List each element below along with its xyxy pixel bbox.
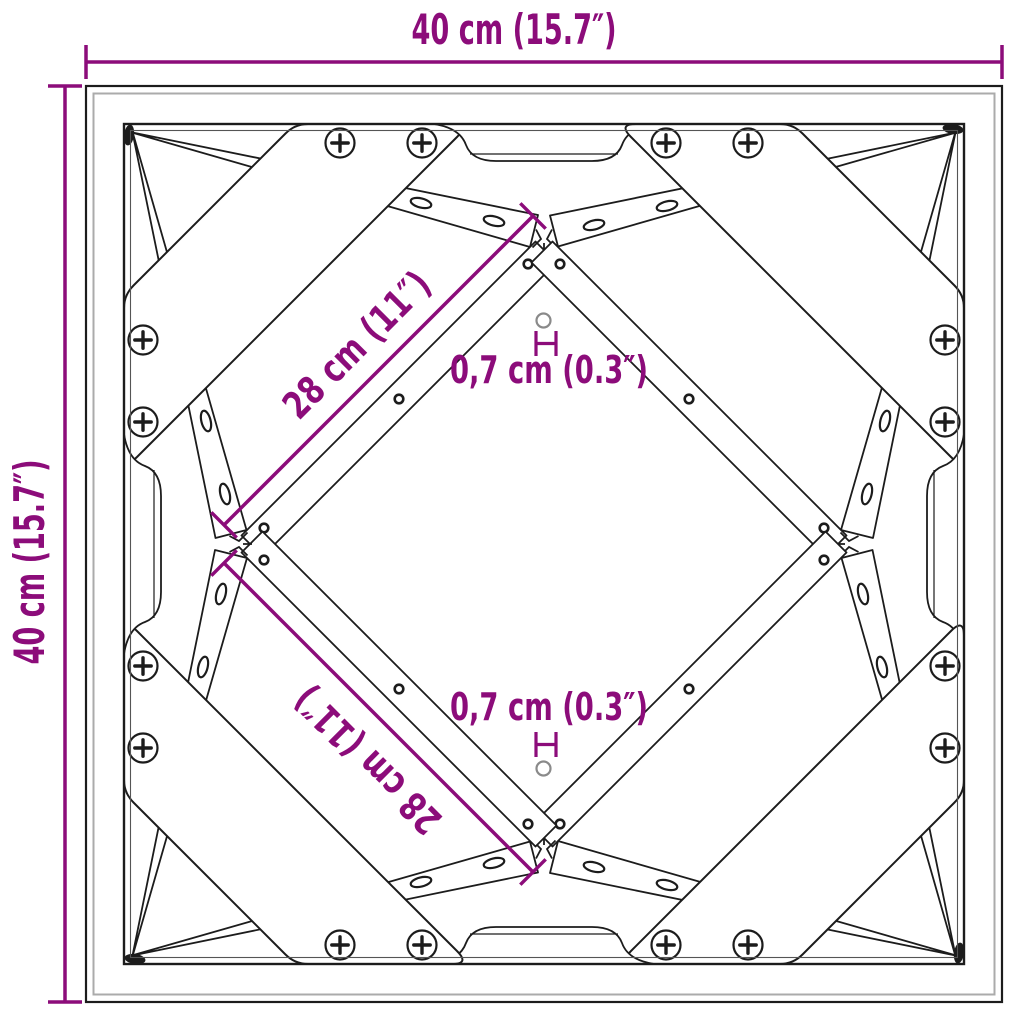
screw-icon bbox=[129, 408, 158, 437]
screw-icon bbox=[408, 129, 437, 158]
hole-diameter-label-lower: 0,7 cm (0.3″) bbox=[450, 685, 648, 729]
dimension-label-height: 40 cm (15.7″) bbox=[5, 460, 54, 665]
screw-icon bbox=[129, 326, 158, 355]
edge-mounting-plate bbox=[434, 124, 654, 161]
dimension-width-top: 40 cm (15.7″) bbox=[86, 5, 1002, 79]
dimension-height-left: 40 cm (15.7″) bbox=[5, 86, 82, 1002]
hole-marker bbox=[537, 314, 551, 328]
screw-icon bbox=[326, 129, 355, 158]
table-frame-technical-drawing: 40 cm (15.7″) 40 cm (15.7″) 28 cm (11″) … bbox=[0, 0, 1024, 1024]
frame-quadrant-rotated bbox=[434, 532, 965, 965]
hole-size-bracket bbox=[536, 732, 556, 757]
hole-marker bbox=[537, 762, 551, 776]
hole-diameter-label-upper: 0,7 cm (0.3″) bbox=[450, 348, 648, 392]
dimension-label-width: 40 cm (15.7″) bbox=[412, 5, 617, 54]
product-dimension-image: 40 cm (15.7″) 40 cm (15.7″) 28 cm (11″) … bbox=[0, 0, 1024, 1024]
